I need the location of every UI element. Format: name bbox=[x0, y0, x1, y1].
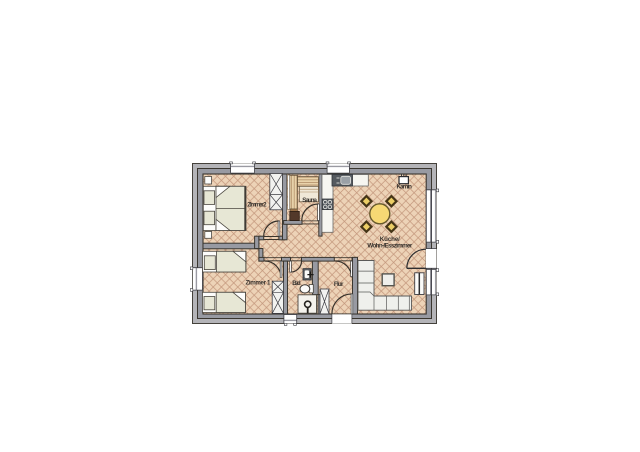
svg-text:Bad: Bad bbox=[292, 280, 301, 287]
svg-text:Wohn-/Esszimmer: Wohn-/Esszimmer bbox=[367, 242, 412, 249]
svg-text:Kamin: Kamin bbox=[397, 183, 413, 190]
svg-text:Flur: Flur bbox=[334, 281, 344, 288]
svg-text:Zimmer 2: Zimmer 2 bbox=[247, 201, 267, 208]
svg-text:Zimmer 1: Zimmer 1 bbox=[246, 279, 272, 286]
svg-text:Sauna: Sauna bbox=[302, 197, 317, 204]
